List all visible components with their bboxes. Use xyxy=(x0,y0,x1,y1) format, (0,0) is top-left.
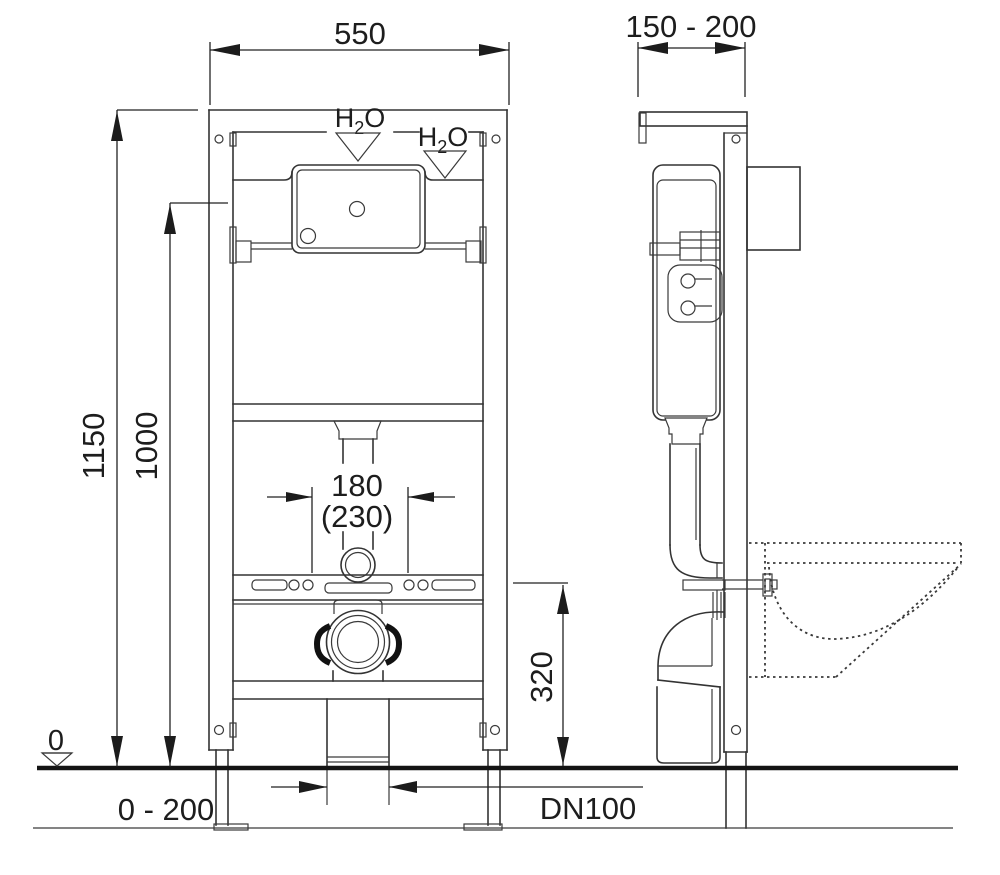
drain-socket xyxy=(327,611,390,674)
arrow-right-icon xyxy=(286,492,312,502)
frame-rail-side xyxy=(724,126,747,828)
outlet-flange xyxy=(683,580,725,590)
dim-flush-offset: 180 (230) xyxy=(267,468,455,573)
fixing-slot xyxy=(432,580,475,590)
flush-bend-side xyxy=(670,444,725,590)
wc-fixing-stud xyxy=(722,574,777,596)
arrow-left-icon xyxy=(389,781,417,793)
arrow-right-icon xyxy=(299,781,327,793)
cistern-reducer xyxy=(665,418,707,444)
fixing-hole xyxy=(404,580,414,590)
dim-text: 1000 xyxy=(129,412,164,481)
arrow-up-icon xyxy=(164,204,176,234)
arrow-up-icon xyxy=(111,111,123,141)
flush-plate-housing xyxy=(747,167,800,250)
fixing-hole xyxy=(418,580,428,590)
drain-elbow-side xyxy=(657,590,725,763)
wc-bowl-outline xyxy=(749,543,961,677)
rail-hole xyxy=(492,135,500,143)
dim-text: 180 xyxy=(331,468,383,503)
fill-valve xyxy=(680,230,720,262)
cistern-support-rods xyxy=(230,227,486,263)
arrow-down-icon xyxy=(164,736,176,766)
dim-text: DN100 xyxy=(540,791,637,826)
fixing-hole xyxy=(303,580,313,590)
frame-rail-right xyxy=(464,110,507,830)
front-view: H2O H2O xyxy=(209,103,507,830)
dim-text: 150 - 200 xyxy=(626,9,757,44)
access-opening xyxy=(292,165,425,253)
cistern-side xyxy=(650,165,722,444)
water-level-label-1: H2O xyxy=(335,103,386,161)
dim-text: 550 xyxy=(334,16,386,51)
dim-frame-depth: 150 - 200 xyxy=(626,9,757,97)
rod-bracket xyxy=(466,241,481,262)
rail-hole xyxy=(215,135,223,143)
flush-pipe-bell xyxy=(334,421,381,439)
arrow-left-icon xyxy=(210,44,240,56)
arrow-right-icon xyxy=(479,44,509,56)
datum-text: 0 xyxy=(48,725,64,757)
drawing-page: H2O H2O xyxy=(0,0,1000,875)
datum-symbol: 0 xyxy=(42,725,72,766)
dim-floor-buildup: 0 - 200 xyxy=(118,792,215,827)
foot-plate xyxy=(214,824,248,830)
dim-text-alt: (230) xyxy=(321,499,393,534)
flush-opening-hole xyxy=(301,229,316,244)
fixing-hole xyxy=(289,580,299,590)
water-level-label-2: H2O xyxy=(418,122,469,178)
dim-height-frame: 1000 xyxy=(129,203,228,767)
arrow-down-icon xyxy=(557,737,569,765)
wall-bracket xyxy=(639,112,747,143)
fixing-slot xyxy=(252,580,287,590)
dim-text: 0 - 200 xyxy=(118,792,215,827)
rail-hole xyxy=(215,726,224,735)
lower-crossbar xyxy=(233,681,483,699)
rod-bracket xyxy=(236,241,251,262)
frame-rail-left xyxy=(209,110,248,830)
supply-tab xyxy=(650,243,680,255)
dim-text: 320 xyxy=(524,651,559,703)
flush-valve xyxy=(668,265,722,322)
outlet-pipe xyxy=(327,699,389,805)
foot-plate xyxy=(464,824,502,830)
flush-opening-hole xyxy=(350,202,365,217)
rail-hole xyxy=(732,135,740,143)
rail-hole xyxy=(491,726,500,735)
side-view xyxy=(639,112,961,828)
arrow-down-icon xyxy=(111,736,123,766)
dim-outlet-height: 320 xyxy=(513,583,569,766)
drain-elbow-front xyxy=(317,600,399,681)
rail-hole xyxy=(732,726,741,735)
arrow-left-icon xyxy=(408,492,434,502)
dim-frame-width: 550 xyxy=(210,16,509,105)
mid-crossbar xyxy=(233,404,483,421)
arrow-up-icon xyxy=(557,586,569,614)
wc-frame-installation-drawing: H2O H2O xyxy=(0,0,1000,875)
fixing-slot xyxy=(325,583,392,593)
dim-text: 1150 xyxy=(76,413,111,480)
